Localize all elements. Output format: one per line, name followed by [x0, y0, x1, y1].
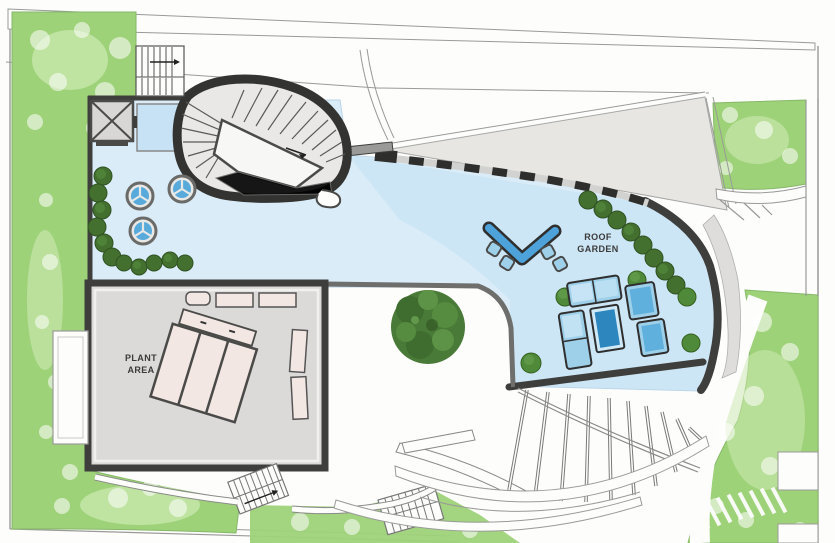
central-tree	[391, 290, 465, 364]
armchair-1	[625, 282, 659, 320]
stair-top-left	[136, 46, 184, 96]
spiral-staircase	[177, 79, 347, 207]
armchair-2	[637, 319, 669, 357]
plant-area-label-line2: AREA	[127, 365, 154, 375]
roof-garden-label-line1: ROOF	[584, 232, 612, 242]
roof-plan-drawing: PLANT AREA	[0, 0, 835, 543]
right-notch-1	[778, 452, 818, 490]
right-notch-2	[778, 524, 818, 543]
plant-area-label-line1: PLANT	[125, 353, 157, 363]
coffee-table	[590, 305, 625, 353]
round-chair	[130, 218, 156, 244]
roof-plan-canvas: PLANT AREA	[0, 0, 835, 543]
elevator-shaft	[91, 101, 133, 146]
round-chair	[127, 183, 153, 209]
planter-box	[53, 331, 88, 444]
right-planting-band	[716, 186, 806, 220]
roof-garden-label-line2: GARDEN	[577, 244, 618, 254]
terrace-left-wall	[511, 328, 513, 387]
round-chair	[169, 176, 195, 202]
plant-room: PLANT AREA	[88, 283, 325, 468]
plant-room-shelves	[186, 292, 296, 307]
